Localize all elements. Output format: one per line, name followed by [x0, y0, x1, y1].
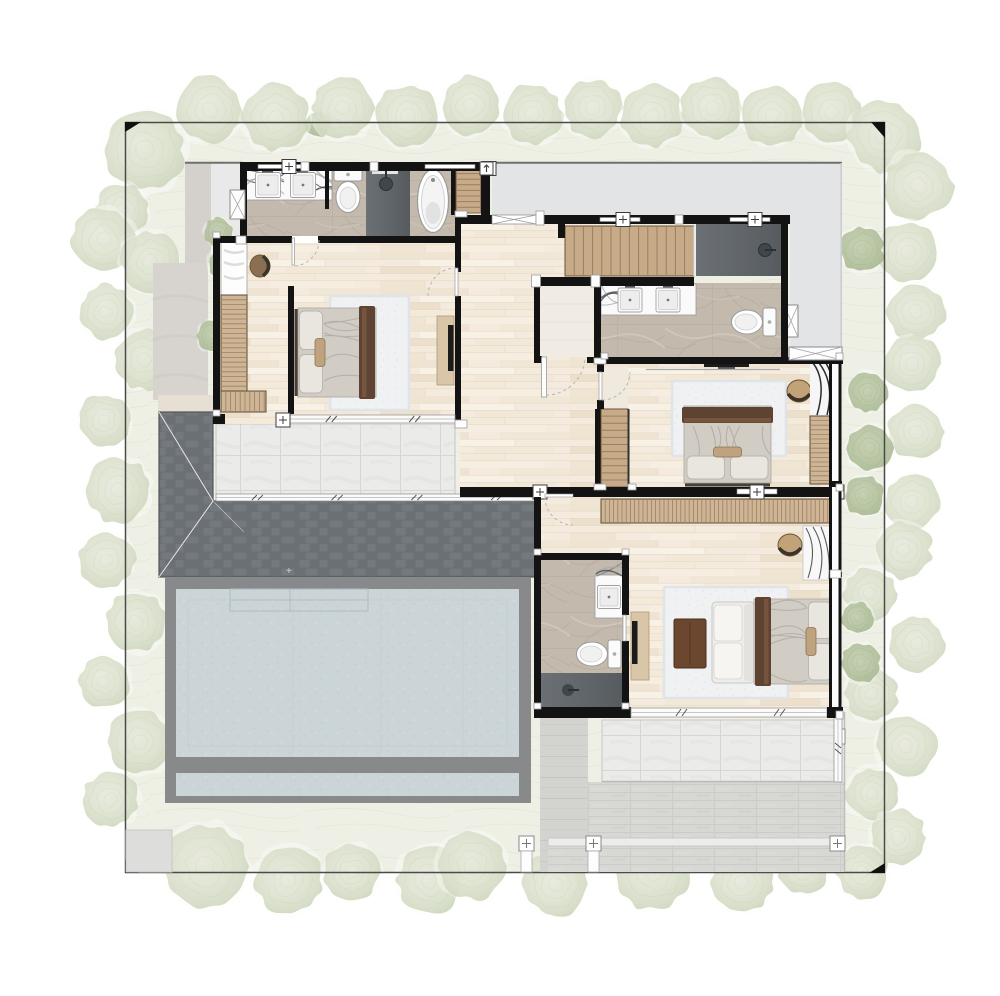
svg-text:+: +	[286, 566, 292, 577]
